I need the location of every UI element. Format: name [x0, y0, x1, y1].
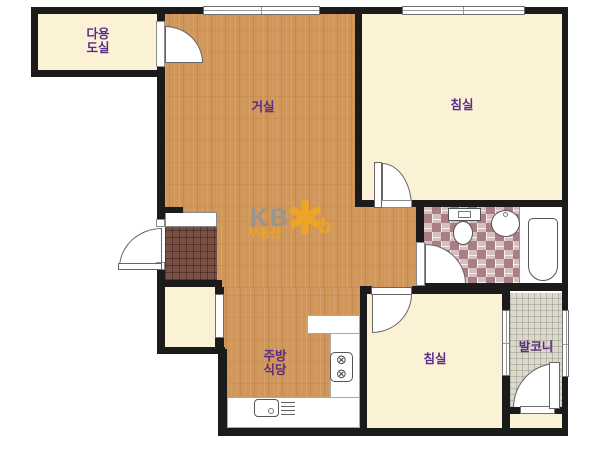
- floor-plan: ⊗ ⊗: [0, 0, 600, 449]
- entrance-door-frame-top: [156, 219, 165, 227]
- dish-rack-icon: [281, 402, 295, 415]
- wall-bedroom-top-bottom-b: [412, 200, 568, 207]
- wall-balcony-left-upper: [502, 286, 510, 310]
- wall-balcony-left-lower: [502, 376, 510, 436]
- wall-kitchen-left: [218, 349, 227, 428]
- utility-room-label: 다용 도실: [68, 27, 128, 56]
- bedroom-bottom-door-leaf: [371, 287, 412, 295]
- entrance-door-leaf: [118, 263, 162, 270]
- wall-balcony-bottom-a: [502, 407, 520, 414]
- bathroom-door-frame: [416, 242, 425, 286]
- utility-room-label-line1: 다용: [68, 27, 128, 41]
- window-mullion: [463, 7, 464, 14]
- bedroom-bottom-label: 침실: [405, 352, 465, 366]
- entry-closet: [165, 212, 217, 227]
- wall-bedroom-bottom-left: [360, 294, 367, 428]
- balcony-door-leaf: [549, 362, 560, 409]
- kitchen-label-line1: 주방: [245, 349, 305, 363]
- living-room-label: 거실: [233, 100, 293, 114]
- bedroom-top-label: 침실: [432, 98, 492, 112]
- bedroom-top-door-leaf: [374, 162, 382, 208]
- kitchen-counter-top: [307, 315, 360, 334]
- bedroom-top-window: [402, 6, 525, 15]
- living-room-window: [203, 6, 320, 15]
- kitchen-label-line2: 식당: [245, 363, 305, 377]
- stove-burner-icon: ⊗: [331, 367, 352, 381]
- utility-door-frame: [156, 21, 165, 67]
- wall-right-upper: [562, 7, 568, 310]
- wall-bottom: [218, 428, 568, 436]
- kitchen-sink-drain: [268, 408, 274, 414]
- entry-side-room-floor: [165, 287, 216, 347]
- wall-sideroom-door-stub-bottom: [215, 338, 224, 349]
- wall-bedroom-top-bottom-a: [355, 200, 375, 207]
- wall-living-left: [157, 67, 165, 213]
- balcony-lower-floor: [510, 414, 562, 428]
- wall-utility-left: [31, 7, 38, 77]
- toilet-tank-button: [458, 211, 471, 218]
- stove-burner-icon: ⊗: [331, 353, 352, 367]
- wall-bathroom-left: [416, 205, 424, 242]
- stove-icon: ⊗ ⊗: [330, 352, 353, 382]
- kitchen-label: 주방 식당: [245, 349, 305, 378]
- bathtub-icon: [528, 218, 558, 281]
- utility-room-label-line2: 도실: [68, 41, 128, 55]
- wall-living-left-upper: [157, 7, 165, 22]
- wall-bedroom-bottom-top-b: [412, 286, 510, 294]
- window-mullion: [261, 7, 262, 14]
- balcony-label: 발코니: [506, 340, 566, 354]
- wall-sideroom-left: [157, 287, 165, 354]
- wall-vestibule-bottom: [157, 280, 222, 287]
- side-room-door-frame: [215, 294, 224, 338]
- bathroom-zone-divider: [519, 205, 520, 283]
- bathroom-sink-tap: [503, 212, 508, 217]
- kitchen-sink-icon: [254, 399, 279, 417]
- toilet-bowl-icon: [453, 221, 473, 245]
- entry-vestibule-floor: [165, 227, 217, 280]
- wall-utility-bottom: [31, 70, 164, 77]
- wall-bedroom-top-left: [355, 7, 362, 200]
